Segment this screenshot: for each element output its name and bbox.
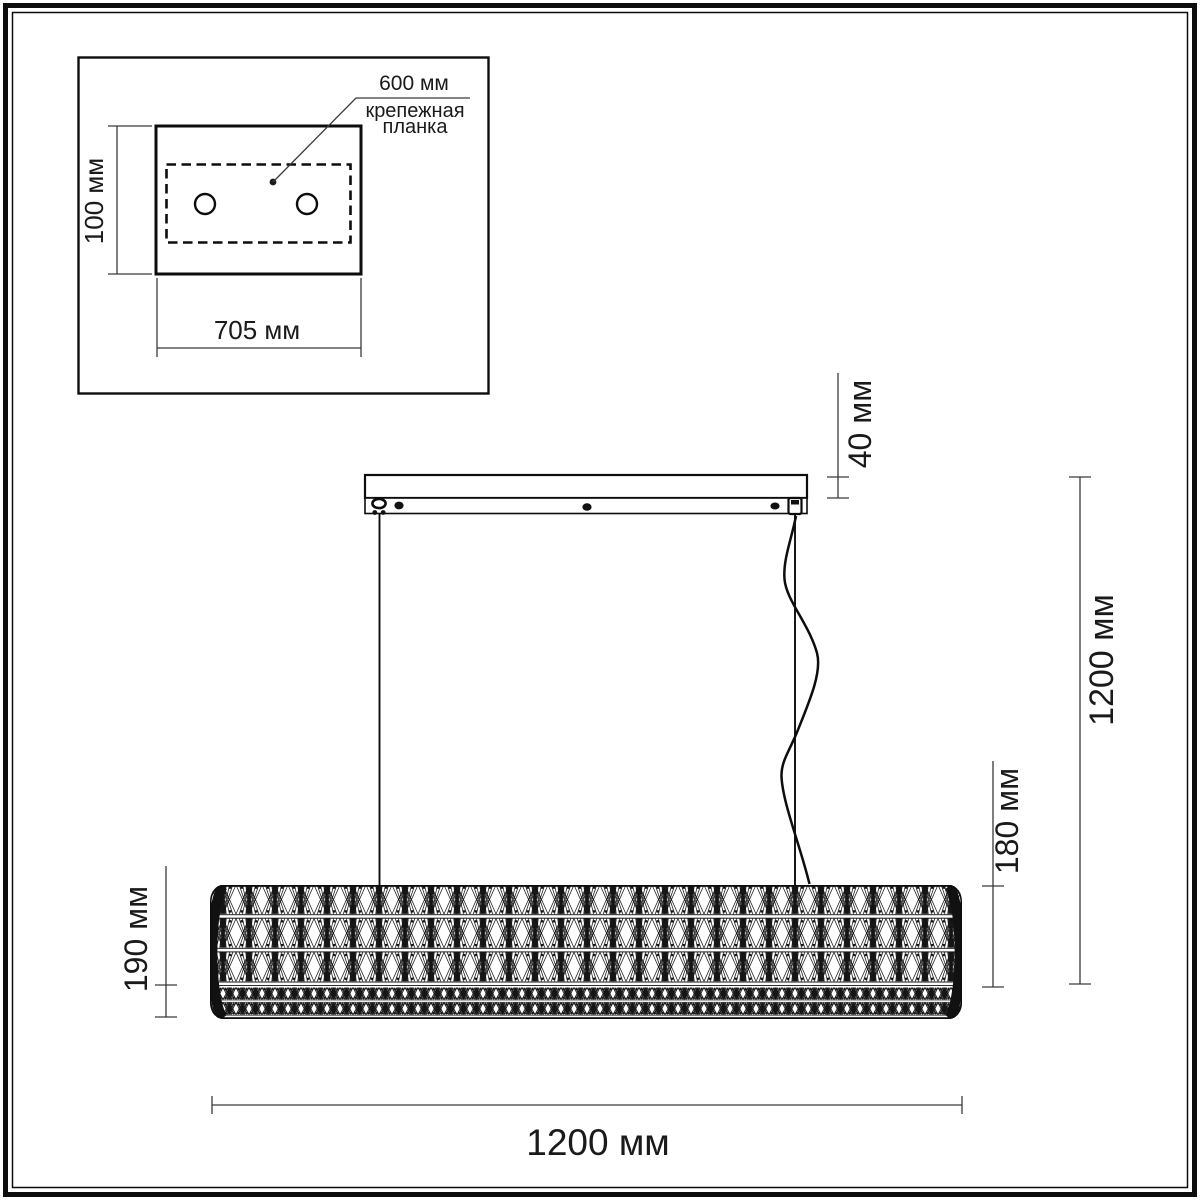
- technical-drawing-canvas: 600 мм крепежная планка 100 мм 705 мм 40…: [0, 0, 1200, 1200]
- overall-width-label: 1200 мм: [458, 1124, 738, 1163]
- mounting-hole-right: [297, 194, 317, 214]
- power-cord: [781, 516, 818, 884]
- shade-crystal-body: [210, 885, 962, 986]
- ceiling-canopy: [365, 475, 807, 515]
- wire-gripper-left: [372, 499, 385, 508]
- canopy-screw-middle: [582, 503, 591, 510]
- shade-body-height-label: 180 мм: [991, 741, 1025, 901]
- plate-height-label: 100 мм: [81, 126, 111, 276]
- plate-width-label: 705 мм: [177, 317, 337, 344]
- shade-crystal-underside: [210, 988, 962, 1020]
- canopy-screw-left: [394, 502, 403, 510]
- drawing-linework: [0, 0, 1200, 1200]
- canopy-height-label: 40 мм: [844, 359, 878, 489]
- dimension-overall-width: [212, 1096, 962, 1114]
- mounting-hole-left: [195, 194, 215, 214]
- crystal-shade: [210, 885, 962, 1019]
- bracket-length-label: 600 мм: [334, 73, 494, 95]
- overall-height-label: 1200 мм: [1085, 545, 1121, 775]
- bracket-name-label: крепежная планка: [330, 103, 500, 135]
- ceiling-plate-outline: [156, 126, 361, 274]
- bracket-name-line2: планка: [330, 119, 500, 135]
- dimension-plate-height: [108, 126, 152, 274]
- dimension-shade-total-height: [155, 866, 177, 1017]
- canopy-screw-right: [770, 503, 779, 510]
- shade-total-height-label: 190 мм: [120, 854, 154, 1024]
